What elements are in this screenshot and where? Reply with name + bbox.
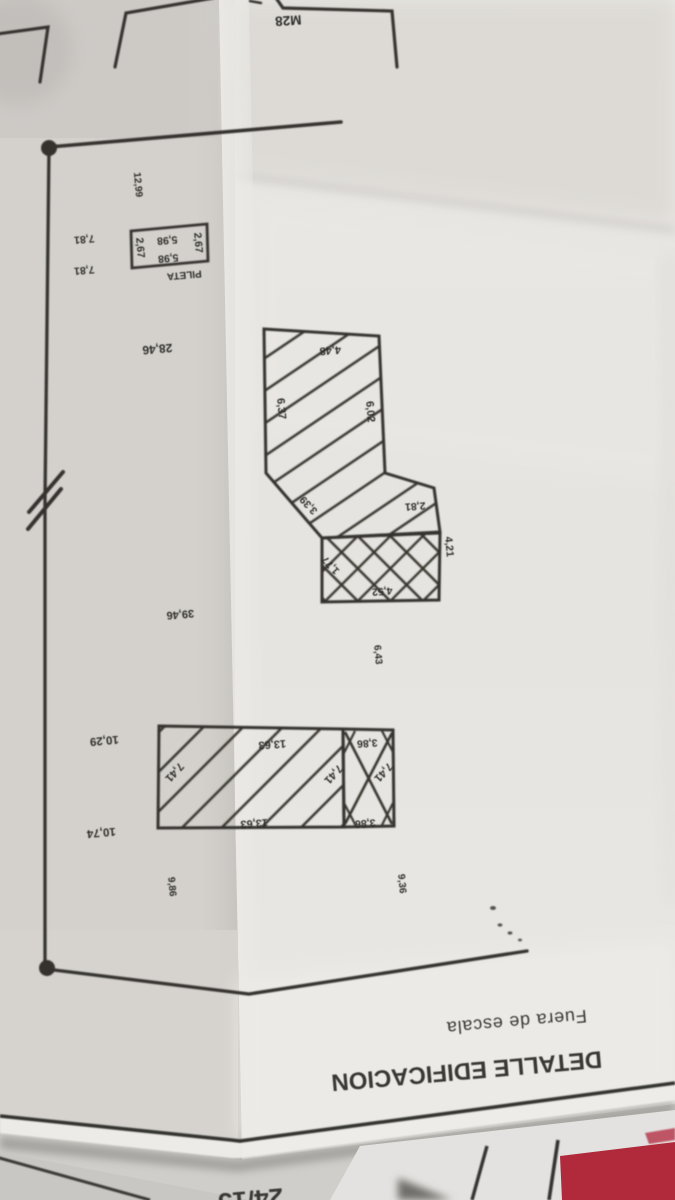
svg-text:7,81: 7,81 xyxy=(73,232,95,246)
svg-text:6,37: 6,37 xyxy=(274,398,288,420)
svg-text:12,99: 12,99 xyxy=(131,172,144,198)
svg-text:4,21: 4,21 xyxy=(442,536,456,558)
svg-text:13,63: 13,63 xyxy=(240,816,268,830)
svg-text:2,67: 2,67 xyxy=(191,232,205,254)
svg-text:5,98: 5,98 xyxy=(157,251,179,265)
svg-text:7,81: 7,81 xyxy=(73,263,95,277)
svg-text:13,63: 13,63 xyxy=(258,737,286,751)
svg-text:3,86: 3,86 xyxy=(356,736,377,749)
svg-text:28,46: 28,46 xyxy=(141,341,172,358)
svg-text:6,43: 6,43 xyxy=(371,645,384,666)
svg-text:9,36: 9,36 xyxy=(395,874,408,895)
svg-text:5,98: 5,98 xyxy=(156,233,178,247)
svg-text:10,29: 10,29 xyxy=(89,733,119,747)
svg-text:6,02: 6,02 xyxy=(363,401,377,423)
svg-text:39,46: 39,46 xyxy=(166,607,194,621)
svg-text:3,86: 3,86 xyxy=(354,816,375,829)
svg-text:M28: M28 xyxy=(274,12,302,29)
svg-text:4,52: 4,52 xyxy=(371,584,392,597)
svg-text:9,86: 9,86 xyxy=(165,877,178,898)
svg-text:2,67: 2,67 xyxy=(133,237,147,259)
svg-text:4,48: 4,48 xyxy=(319,343,341,356)
svg-text:10,74: 10,74 xyxy=(86,825,116,840)
svg-text:2,81: 2,81 xyxy=(404,499,425,512)
